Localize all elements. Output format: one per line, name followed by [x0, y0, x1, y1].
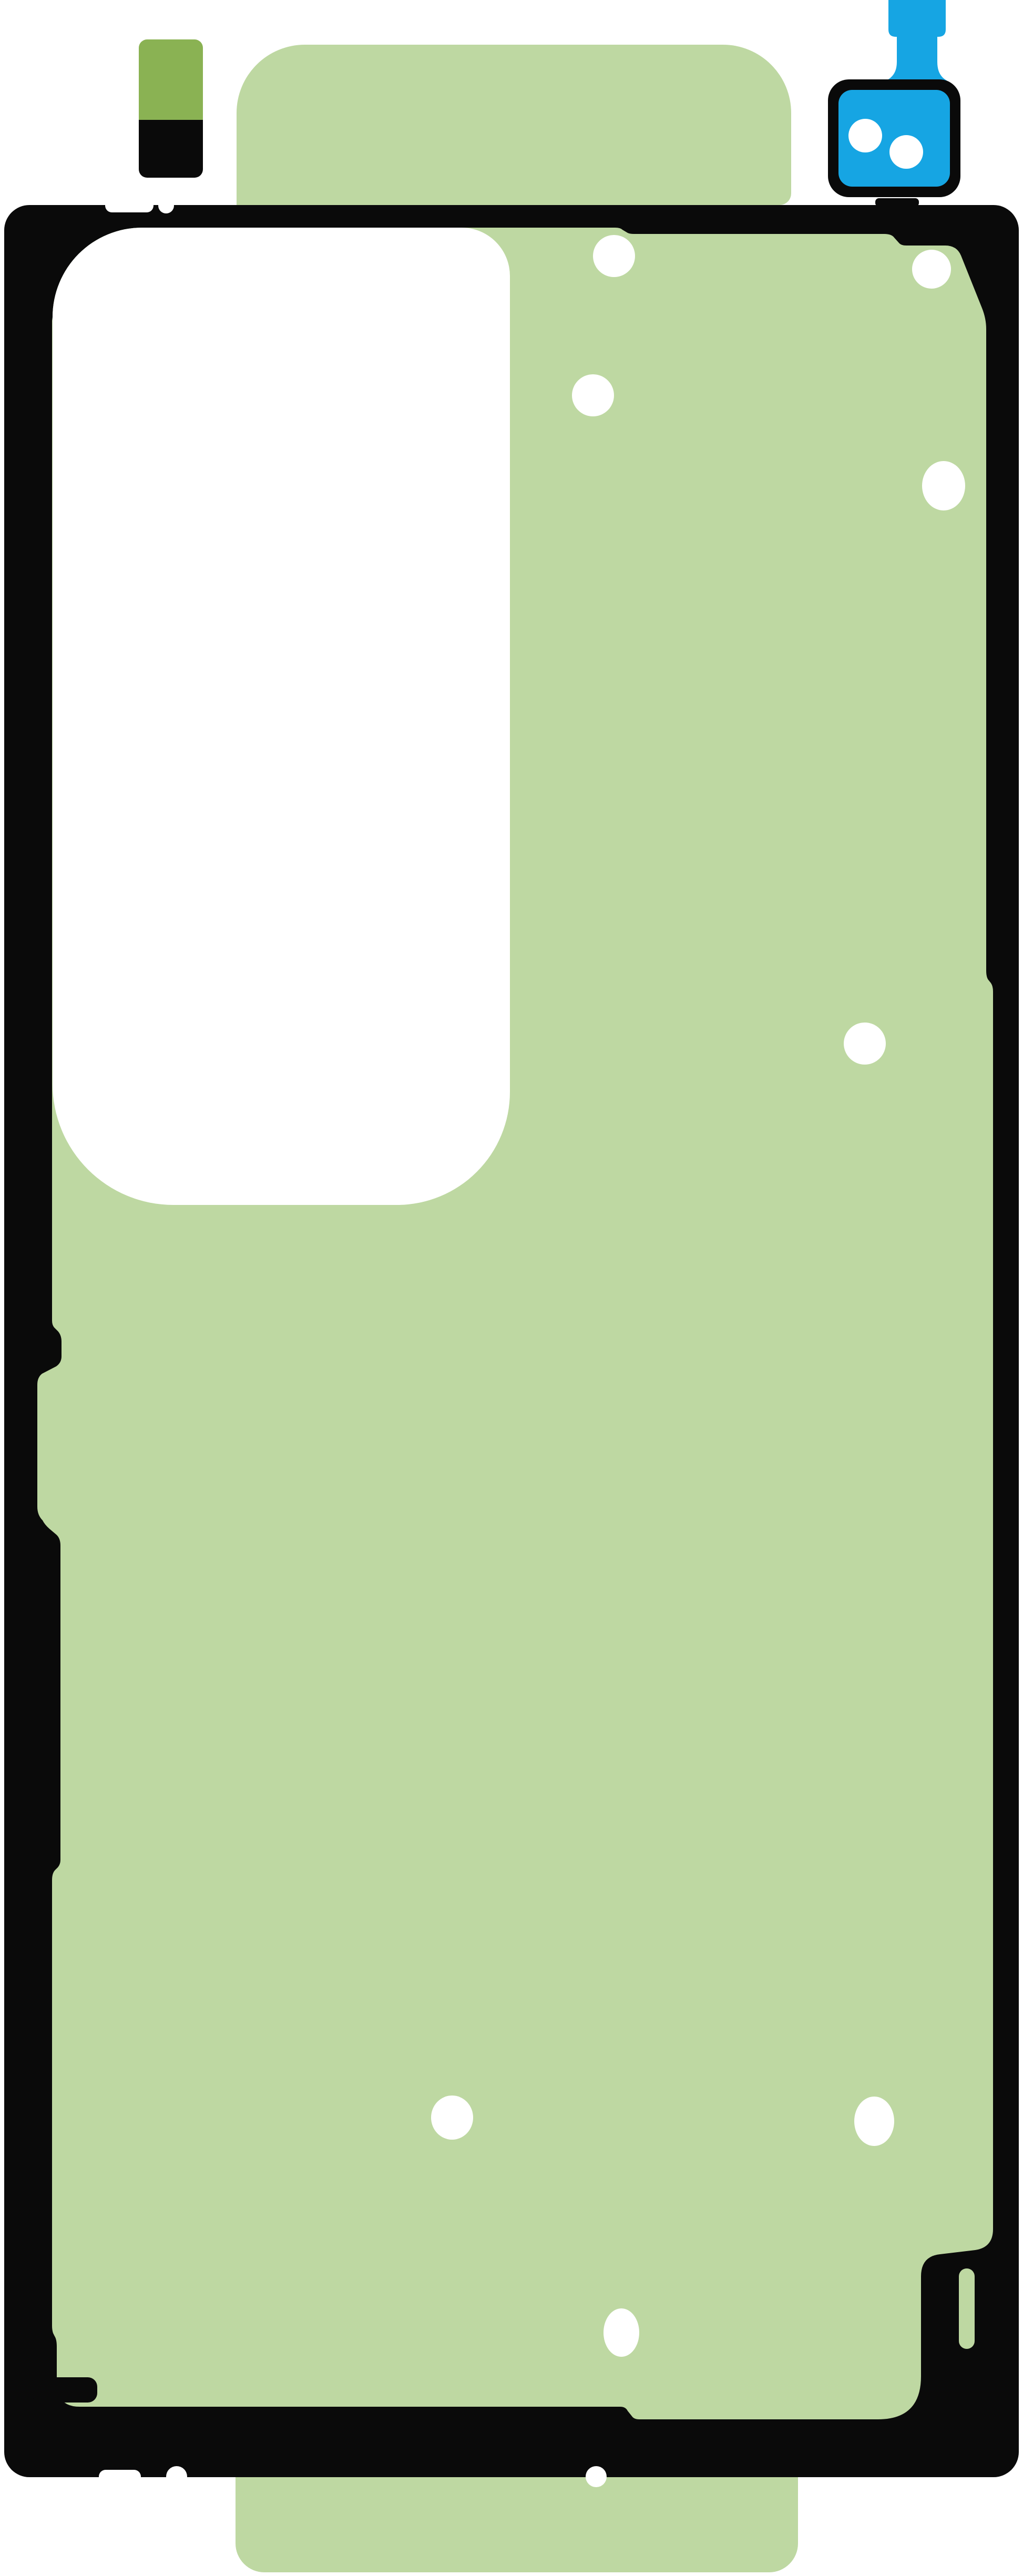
camera-sticker-hole-1 — [848, 119, 882, 152]
bottom-edge-notch-semicircle-left — [166, 2466, 187, 2487]
punch-hole-bottom-right — [854, 2097, 894, 2146]
top-edge-notch-dip — [105, 198, 154, 212]
punch-hole-top-right — [912, 250, 951, 289]
top-edge-notch-semicircle — [158, 198, 174, 213]
bottom-edge-notch-dip — [99, 2470, 141, 2485]
punch-hole-top-left — [593, 235, 635, 277]
backing-sheet-bottom-tab — [236, 2476, 798, 2572]
punch-hole-bottom-center — [603, 2308, 639, 2357]
punch-hole-bottom-left — [431, 2095, 473, 2140]
left-edge-protrusion — [32, 2377, 97, 2403]
corner-slit-mark — [959, 2268, 975, 2349]
camera-sticker-hole-2 — [889, 135, 923, 169]
backing-sheet-top-strip — [237, 45, 791, 205]
punch-hole-middle — [844, 1023, 886, 1065]
pull-tab-black-part — [139, 120, 203, 178]
camera-sticker-connector-stub — [875, 198, 919, 207]
punch-hole-right-upper — [922, 461, 965, 510]
adhesive-sticker-illustration — [0, 0, 1023, 2576]
punch-hole-top-left-lower — [572, 374, 614, 416]
camera-cutout — [53, 228, 510, 1205]
bottom-edge-notch-semicircle-center — [586, 2466, 607, 2487]
pull-tab-green-part — [139, 39, 203, 120]
product-image-canvas — [0, 0, 1023, 2576]
